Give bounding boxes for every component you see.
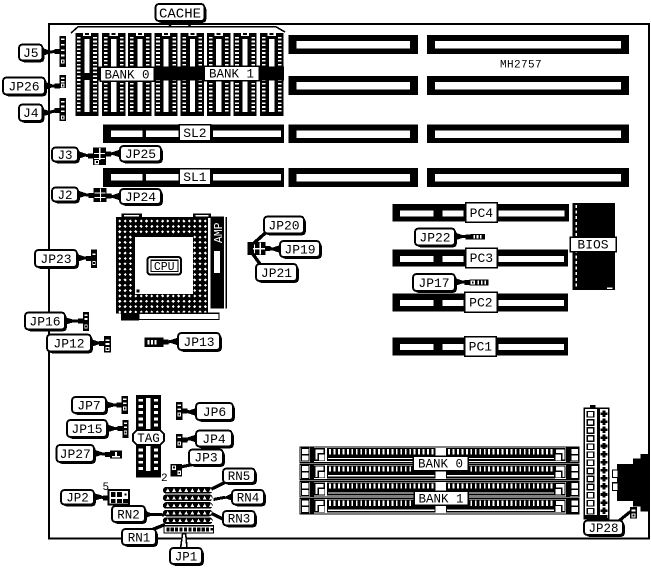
svg-text:JP1: JP1	[175, 550, 198, 564]
svg-text:JP17: JP17	[418, 276, 449, 291]
svg-text:5: 5	[103, 482, 110, 494]
svg-text:JP3: JP3	[194, 451, 217, 466]
svg-text:JP22: JP22	[419, 230, 450, 245]
svg-text:JP23: JP23	[40, 252, 71, 267]
svg-text:JP24: JP24	[125, 190, 156, 205]
svg-text:JP4: JP4	[202, 432, 226, 447]
svg-text:JP12: JP12	[53, 336, 84, 351]
svg-text:JP7: JP7	[77, 398, 100, 413]
svg-text:RN4: RN4	[237, 492, 260, 506]
svg-text:JP13: JP13	[183, 335, 214, 350]
svg-text:JP27: JP27	[60, 447, 91, 462]
svg-text:SL1: SL1	[183, 170, 207, 185]
svg-text:RN1: RN1	[128, 531, 151, 545]
svg-text:JP28: JP28	[588, 522, 618, 536]
svg-text:JP16: JP16	[29, 314, 60, 329]
svg-text:TAG: TAG	[137, 432, 160, 446]
svg-text:PC1: PC1	[469, 340, 493, 355]
svg-text:PC2: PC2	[469, 295, 492, 310]
svg-text:PC3: PC3	[470, 251, 493, 266]
svg-text:BANK 1: BANK 1	[418, 492, 463, 506]
svg-text:CPU: CPU	[154, 261, 175, 274]
svg-text:BANK 0: BANK 0	[104, 68, 149, 82]
svg-text:JP6: JP6	[203, 405, 226, 420]
svg-text:J4: J4	[23, 106, 39, 121]
svg-text:PC4: PC4	[470, 206, 494, 221]
svg-text:JP26: JP26	[8, 79, 39, 94]
svg-text:JP2: JP2	[66, 492, 89, 506]
svg-text:CACHE: CACHE	[159, 6, 201, 22]
svg-text:JP20: JP20	[268, 218, 299, 233]
svg-text:MH2757: MH2757	[500, 60, 542, 72]
svg-text:AMP: AMP	[213, 222, 226, 243]
svg-text:JP25: JP25	[125, 147, 156, 162]
svg-text:J5: J5	[23, 46, 39, 61]
svg-text:RN5: RN5	[228, 470, 251, 484]
svg-text:JP21: JP21	[261, 266, 292, 281]
svg-text:BIOS: BIOS	[577, 238, 608, 253]
svg-text:J3: J3	[57, 149, 72, 163]
svg-text:SL2: SL2	[183, 126, 206, 141]
svg-text:BANK 1: BANK 1	[209, 68, 254, 82]
svg-text:J2: J2	[57, 189, 72, 203]
svg-text:JP19: JP19	[284, 242, 315, 257]
svg-text:BANK 0: BANK 0	[418, 458, 463, 472]
svg-text:RN2: RN2	[117, 508, 140, 522]
svg-text:JP15: JP15	[71, 422, 102, 437]
svg-text:RN3: RN3	[228, 513, 251, 527]
svg-text:2: 2	[161, 473, 168, 485]
